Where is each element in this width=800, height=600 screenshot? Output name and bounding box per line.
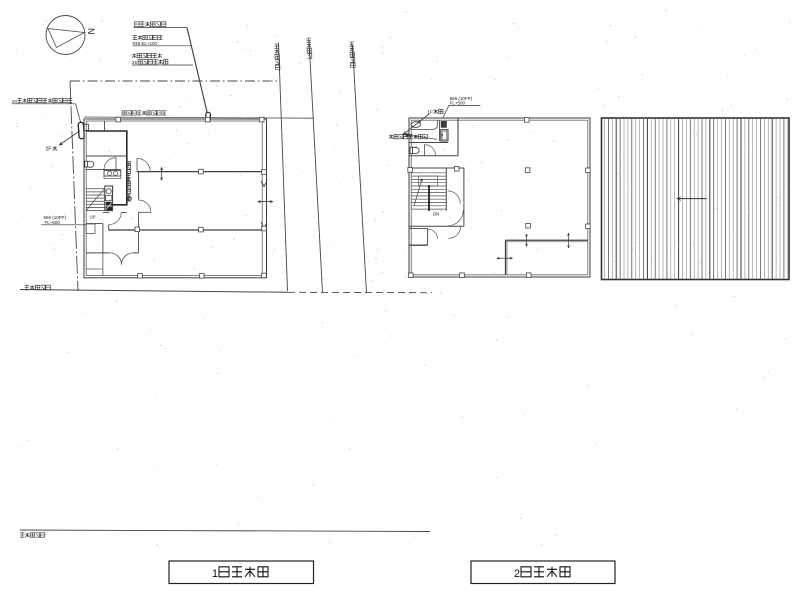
svg-text:UP: UP (90, 214, 96, 219)
svg-text:2: 2 (514, 568, 520, 580)
svg-text:FL+500: FL+500 (450, 101, 466, 106)
svg-text:20: 20 (12, 99, 17, 104)
svg-text:#48 EL+100: #48 EL+100 (133, 41, 158, 46)
svg-text:FL+500: FL+500 (45, 220, 61, 225)
svg-text:1: 1 (212, 568, 218, 580)
svg-text:25: 25 (132, 60, 137, 65)
svg-text:DN: DN (433, 212, 439, 217)
svg-text:N: N (86, 28, 96, 35)
svg-text:2F: 2F (46, 147, 52, 153)
